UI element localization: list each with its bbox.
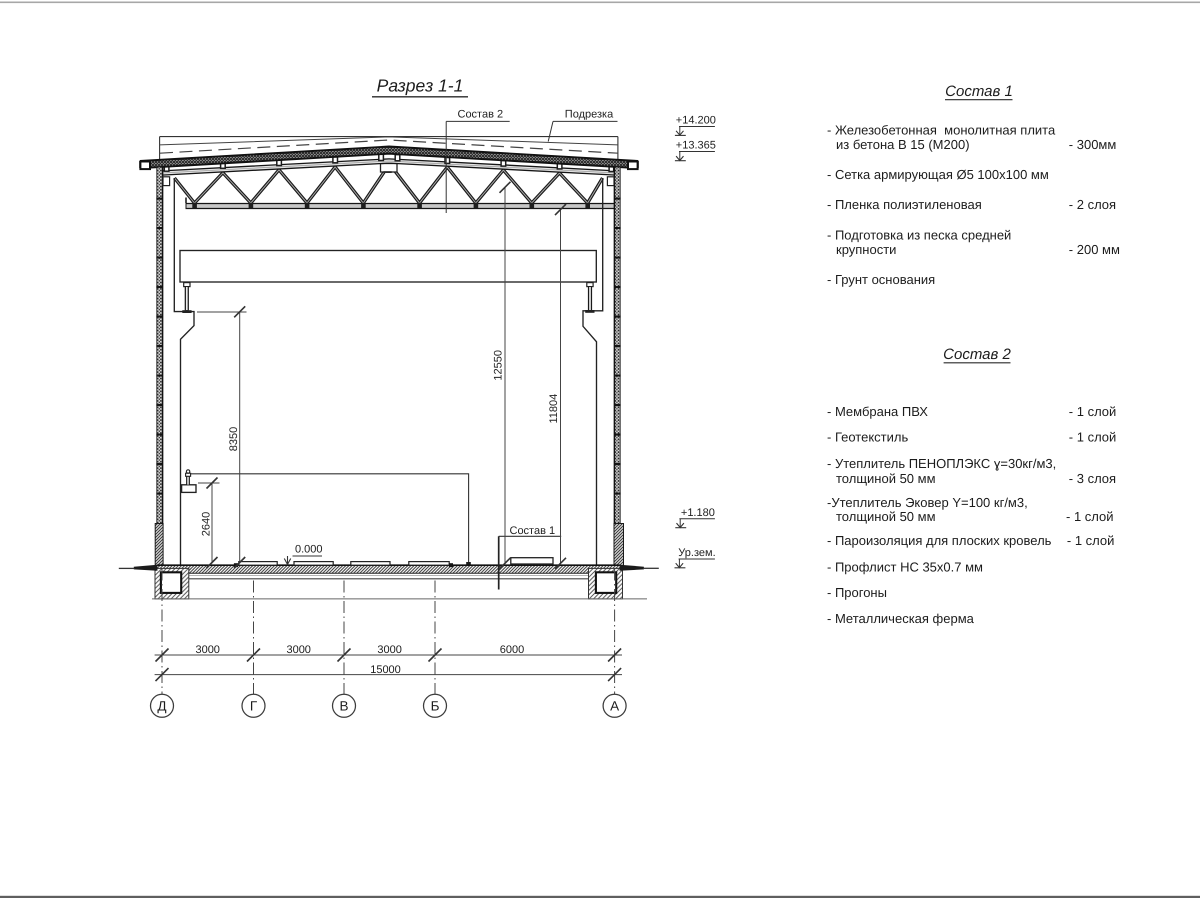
svg-text:толщиной 50 мм: толщиной 50 мм [836,509,936,524]
svg-text:+14.200: +14.200 [676,114,716,126]
svg-text:- Грунт основания: - Грунт основания [827,272,935,287]
svg-text:- Мембрана ПВХ: - Мембрана ПВХ [827,404,928,419]
svg-text:- Профлист НС 35х0.7 мм: - Профлист НС 35х0.7 мм [827,559,983,574]
svg-text:11804: 11804 [548,394,560,424]
svg-text:6000: 6000 [500,644,524,656]
svg-text:Подрезка: Подрезка [565,108,614,120]
svg-text:из бетона В 15 (М200): из бетона В 15 (М200) [836,137,970,152]
svg-text:- 1 слой: - 1 слой [1069,429,1117,444]
svg-text:0.000: 0.000 [295,544,323,556]
svg-text:- Металлическая ферма: - Металлическая ферма [827,611,975,626]
svg-text:- Утеплитель ПЕНОПЛЭКС ɣ=30кг/: - Утеплитель ПЕНОПЛЭКС ɣ=30кг/м3, [827,456,1056,471]
svg-text:- 200 мм: - 200 мм [1069,242,1120,257]
svg-text:- 2 слоя: - 2 слоя [1069,197,1116,212]
svg-text:- Прогоны: - Прогоны [827,585,887,600]
svg-text:Состав 1: Состав 1 [945,83,1013,100]
svg-text:Состав 2: Состав 2 [458,108,504,120]
svg-text:- 1 слой: - 1 слой [1066,509,1114,524]
svg-text:- 1 слой: - 1 слой [1067,533,1115,548]
svg-text:+13.365: +13.365 [676,139,716,151]
svg-text:3000: 3000 [286,644,310,656]
svg-text:- Геотекстиль: - Геотекстиль [827,429,908,444]
svg-text:толщиной 50 мм: толщиной 50 мм [836,471,936,486]
svg-text:крупности: крупности [836,242,896,257]
svg-text:3000: 3000 [377,644,401,656]
svg-text:12550: 12550 [493,350,505,381]
svg-text:- 3 слоя: - 3 слоя [1069,471,1116,486]
svg-text:2640: 2640 [201,512,213,536]
svg-text:-Утеплитель Эковер Y=100 кг/м3: -Утеплитель Эковер Y=100 кг/м3, [827,495,1028,510]
svg-text:- Железобетонная монолитная п: - Железобетонная монолитная плита [827,123,1056,138]
svg-text:- Сетка армирующая Ø5 100х100: - Сетка армирующая Ø5 100х100 мм [827,167,1049,182]
svg-text:Разрез 1-1: Разрез 1-1 [377,76,464,96]
svg-text:А: А [610,698,619,713]
svg-text:- Пленка полиэтиленовая: - Пленка полиэтиленовая [827,197,982,212]
svg-text:- 1 слой: - 1 слой [1069,404,1117,419]
svg-text:Состав 1: Состав 1 [510,525,556,537]
svg-text:- Подготовка из песка средней: - Подготовка из песка средней [827,228,1011,243]
svg-text:Д: Д [157,698,166,713]
svg-text:15000: 15000 [370,664,401,676]
svg-text:Г: Г [250,698,258,713]
svg-text:- 300мм: - 300мм [1069,137,1117,152]
svg-text:3000: 3000 [195,644,219,656]
svg-text:- Пароизоляция для плоских кро: - Пароизоляция для плоских кровель [827,533,1052,548]
svg-text:Состав 2: Состав 2 [943,346,1011,363]
svg-text:+1.180: +1.180 [681,507,715,519]
svg-text:Б: Б [431,698,440,713]
svg-text:8350: 8350 [228,427,240,451]
svg-text:В: В [339,698,348,713]
svg-text:Ур.зем.: Ур.зем. [678,547,715,559]
